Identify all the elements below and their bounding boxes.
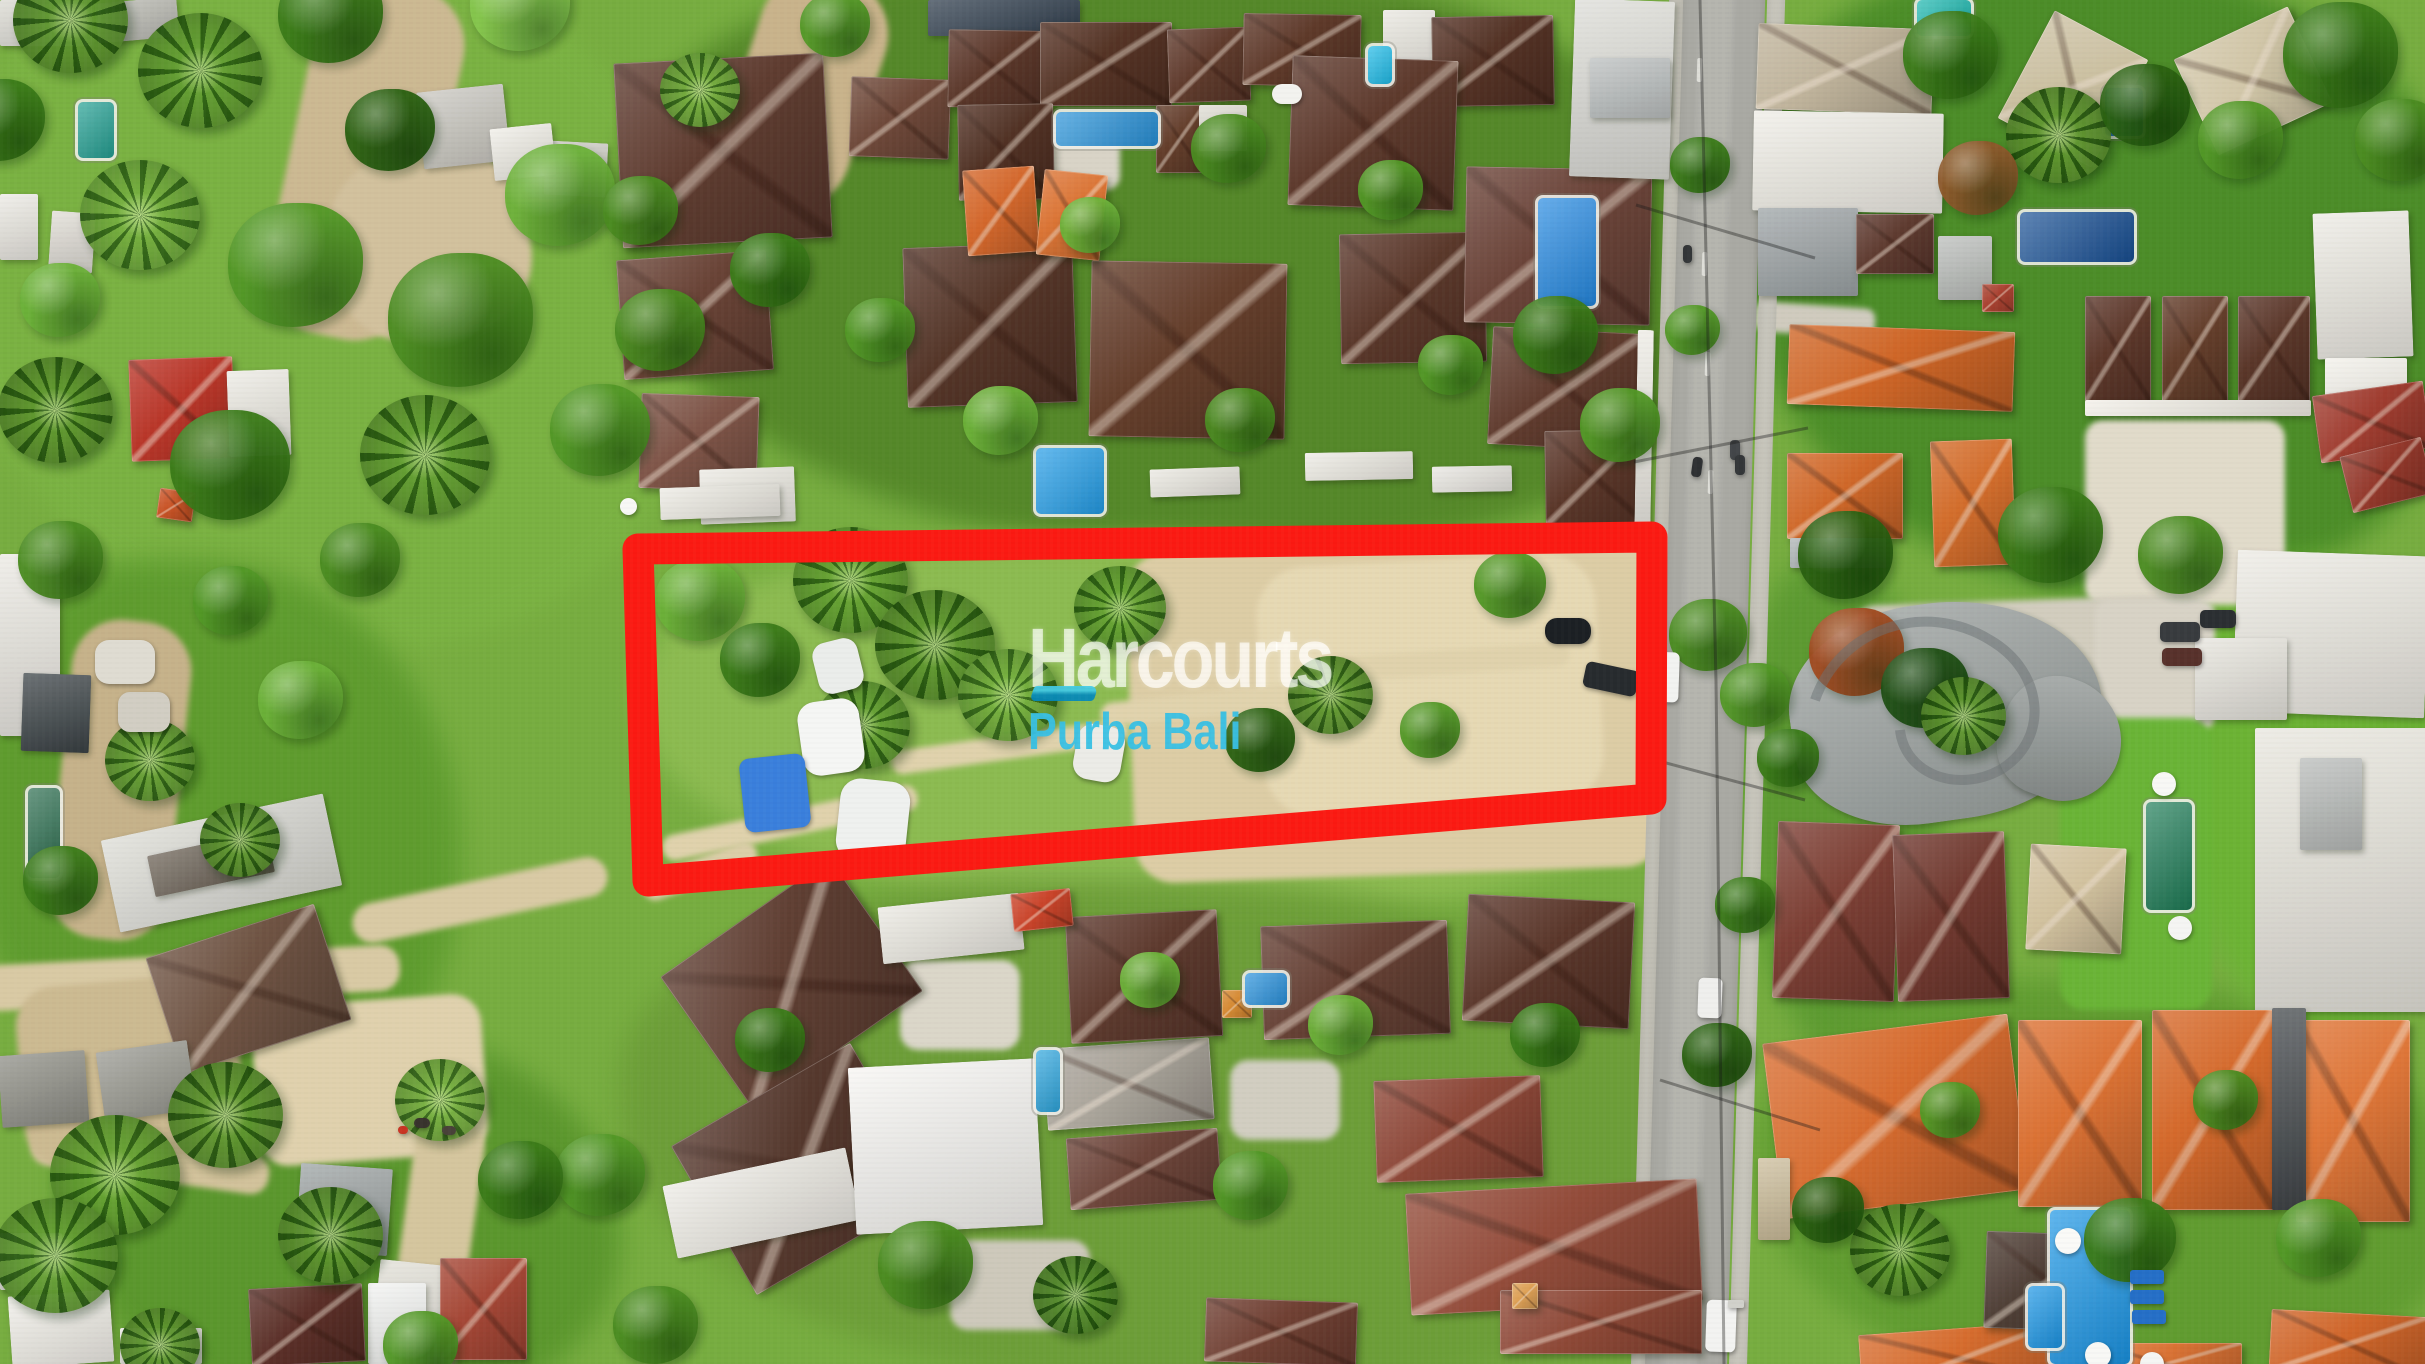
overlay-graphics: [0, 0, 2425, 1364]
power-line: [1700, 0, 1716, 680]
property-boundary-outline: [638, 537, 1652, 881]
aerial-photo: Harcourts Purba Bali: [0, 0, 2425, 1364]
power-line: [1716, 680, 1724, 1364]
power-line: [1660, 1080, 1820, 1130]
power-line: [1636, 205, 1815, 258]
spiral-roof-ridge: [1815, 622, 2035, 780]
power-line: [1634, 428, 1808, 462]
